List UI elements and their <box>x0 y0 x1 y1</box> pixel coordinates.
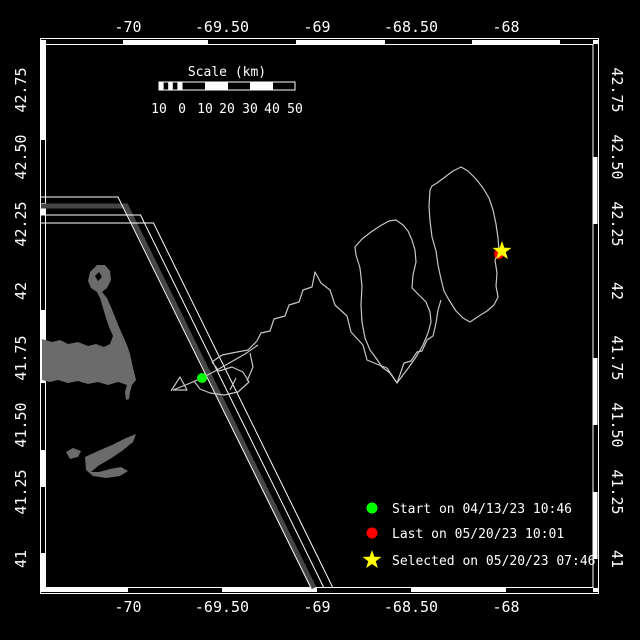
lon-label-top: -69 <box>303 18 330 36</box>
legend-last-label: Last on 05/20/23 10:01 <box>392 527 564 542</box>
lat-label-right: 42.75 <box>608 67 626 112</box>
lat-label-left: 42.50 <box>12 134 30 179</box>
glider-track-map: Scale (km) 10 0 10 20 30 40 50 Start on … <box>0 0 640 640</box>
scale-tick-label: 0 <box>178 102 186 117</box>
legend-start-marker-icon <box>367 503 378 514</box>
lat-label-right: 42.50 <box>608 134 626 179</box>
lat-label-left: 42.25 <box>12 201 30 246</box>
lon-label-top: -69.50 <box>195 18 249 36</box>
lat-label-right: 41.75 <box>608 335 626 380</box>
start-position-marker[interactable] <box>197 373 207 383</box>
lat-label-right: 41.50 <box>608 402 626 447</box>
legend-start-label: Start on 04/13/23 10:46 <box>392 502 572 517</box>
lat-label-left: 41.25 <box>12 469 30 514</box>
legend: Start on 04/13/23 10:46 Last on 05/20/23… <box>363 502 596 569</box>
lat-label-right: 42 <box>608 282 626 300</box>
scale-bar-cell <box>250 82 273 90</box>
scale-bar-title: Scale (km) <box>188 65 266 80</box>
lon-label-bottom: -69 <box>303 598 330 616</box>
lon-label-top: -68 <box>492 18 519 36</box>
scale-tick-label: 30 <box>242 102 258 117</box>
lat-label-right: 42.25 <box>608 201 626 246</box>
map-background <box>0 0 640 640</box>
legend-last-marker-icon <box>367 528 378 539</box>
lat-label-left: 42.75 <box>12 67 30 112</box>
lon-label-top: -68.50 <box>384 18 438 36</box>
scale-tick-label: 40 <box>264 102 280 117</box>
scale-tick-label: 10 <box>197 102 213 117</box>
scale-bar-cell <box>159 82 164 90</box>
lon-label-top: -70 <box>114 18 141 36</box>
scale-tick-label: 20 <box>219 102 235 117</box>
scale-bar-cell <box>205 82 228 90</box>
lon-label-bottom: -70 <box>114 598 141 616</box>
lat-label-right: 41.25 <box>608 469 626 514</box>
legend-selected-label: Selected on 05/20/23 07:46 <box>392 554 596 569</box>
scale-bar-cell <box>177 82 182 90</box>
lat-label-left: 41 <box>12 550 30 568</box>
lat-label-left: 42 <box>12 282 30 300</box>
scale-tick-label: 10 <box>151 102 167 117</box>
scale-bar-cell <box>168 82 173 90</box>
lat-label-left: 41.75 <box>12 335 30 380</box>
lat-label-right: 41 <box>608 550 626 568</box>
lon-label-bottom: -69.50 <box>195 598 249 616</box>
lon-label-bottom: -68 <box>492 598 519 616</box>
lon-label-bottom: -68.50 <box>384 598 438 616</box>
scale-tick-label: 50 <box>287 102 303 117</box>
lat-label-left: 41.50 <box>12 402 30 447</box>
